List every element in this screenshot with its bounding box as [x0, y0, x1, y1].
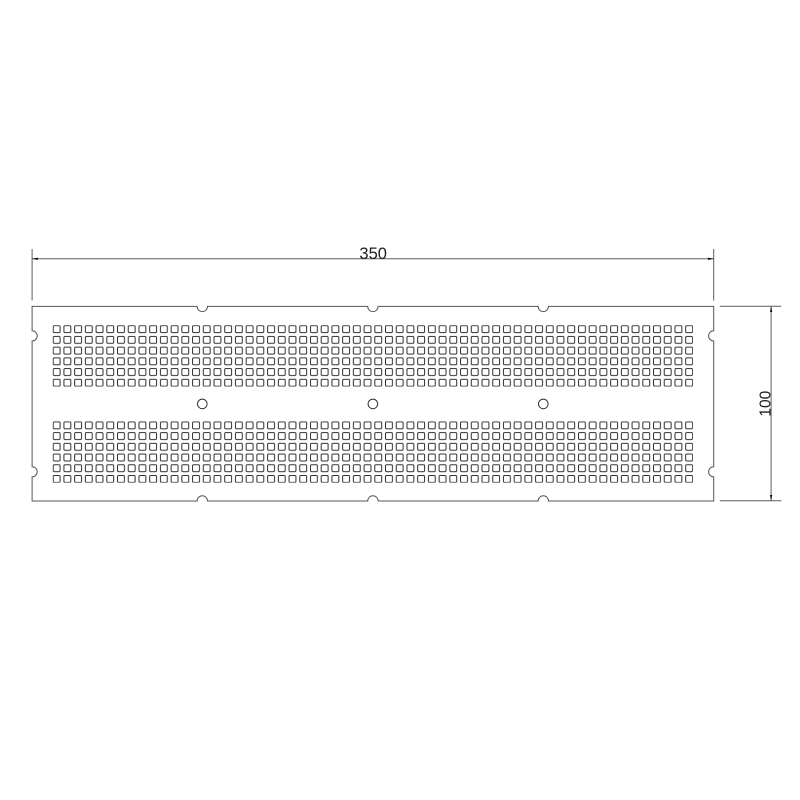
svg-text:350: 350	[359, 245, 387, 263]
svg-text:100: 100	[758, 390, 775, 416]
